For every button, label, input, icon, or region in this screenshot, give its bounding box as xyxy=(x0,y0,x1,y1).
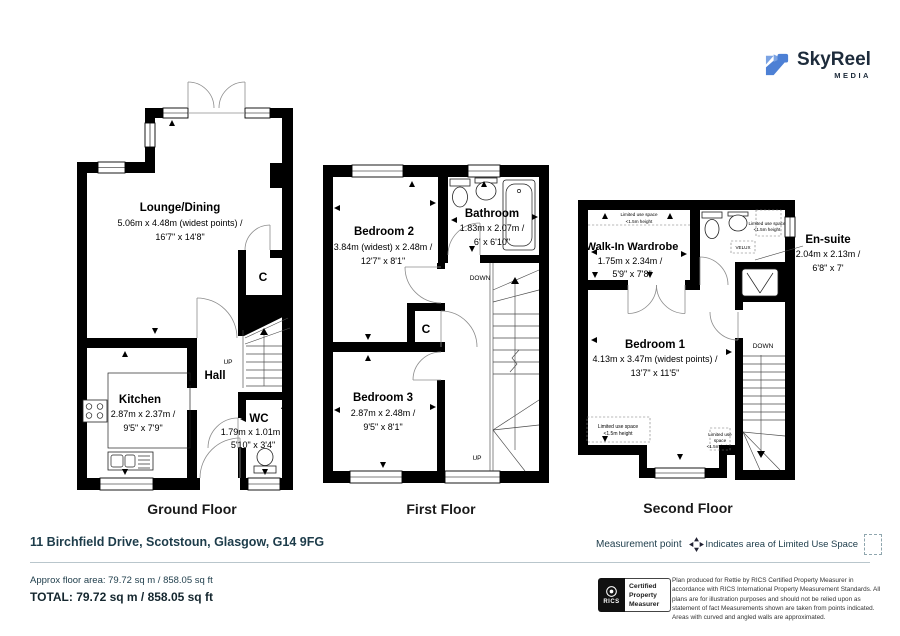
bedroom3-name: Bedroom 3 xyxy=(353,392,413,404)
kitchen-fixtures xyxy=(83,373,276,473)
bedroom1-dims-imperial: 13'7" x 11'5" xyxy=(631,368,680,378)
rics-emblem-icon xyxy=(605,585,618,598)
disclaimer-text: Plan produced for Rettie by RICS Certifi… xyxy=(672,576,886,622)
bathroom-name: Bathroom xyxy=(465,208,519,220)
rics-wordmark: RICS xyxy=(603,599,619,605)
legend-measurement-point: Measurement point xyxy=(596,539,682,550)
lounge-dims-imperial: 16'7" x 14'8" xyxy=(155,232,204,242)
second-floor-plan: Limited use space <1.5m height Walk-In W… xyxy=(575,190,875,490)
ensuite-dims-imperial: 6'8" x 7' xyxy=(812,263,843,273)
kitchen-dims-imperial: 9'5" x 7'9" xyxy=(123,423,162,433)
lounge-dims-metric: 5.06m x 4.48m (widest points) / xyxy=(117,218,243,228)
kitchen-sink-icon xyxy=(108,452,153,470)
property-address: 11 Birchfield Drive, Scotstoun, Glasgow,… xyxy=(30,535,324,549)
total-floor-area: TOTAL: 79.72 sq m / 858.05 sq ft xyxy=(30,590,213,604)
wardrobe-dims-imperial: 5'9" x 7'8" xyxy=(612,269,651,279)
toilet-icon xyxy=(702,212,722,239)
wc-name: WC xyxy=(249,413,268,425)
first-floor-plan: Bedroom 2 3.84m (widest) x 2.48m / 12'7"… xyxy=(320,160,552,485)
skyreel-logo-icon xyxy=(764,50,791,77)
legend-limited-use: Indicates area of Limited Use Space xyxy=(702,539,858,550)
second-floor-stairs xyxy=(743,355,785,470)
ensuite-dims-metric: 2.04m x 2.13m / xyxy=(796,249,861,259)
lounge-name: Lounge/Dining xyxy=(140,202,220,214)
ensuite-name: En-suite xyxy=(805,234,850,246)
bedroom3-dims-metric: 2.87m x 2.48m / xyxy=(351,408,416,418)
kitchen-dims-metric: 2.87m x 2.37m / xyxy=(111,409,176,419)
stairs-up-label: UP xyxy=(472,455,481,462)
stove-icon xyxy=(83,400,107,422)
skyreel-logo-text: SkyReel xyxy=(797,50,871,69)
rics-badge: RICS Certified Property Measurer xyxy=(598,578,671,612)
lus-bottomleft-line2: <1.5m height xyxy=(603,431,633,437)
lus-bottomright-line1: Limited use xyxy=(708,432,732,437)
hall-name: Hall xyxy=(204,370,225,382)
wc-dims-metric: 1.79m x 1.01m / xyxy=(221,427,286,437)
rics-logo: RICS xyxy=(598,578,625,612)
skyreel-logo-sub: MEDIA xyxy=(797,71,871,80)
kitchen-name: Kitchen xyxy=(119,394,161,406)
bedroom1-dims-metric: 4.13m x 3.47m (widest points) / xyxy=(592,354,718,364)
lus-bottomleft-line1: Limited use space xyxy=(598,424,639,430)
bedroom2-dims-metric: 3.84m (widest) x 2.48m / xyxy=(334,242,433,252)
lus-bottomright-line3: <1.5m height xyxy=(707,444,734,449)
approx-floor-area: Approx floor area: 79.72 sq m / 858.05 s… xyxy=(30,575,213,586)
limited-use-swatch-icon xyxy=(864,534,882,555)
second-floor-label: Second Floor xyxy=(608,500,768,516)
toilet-icon xyxy=(450,179,470,207)
lus-wardrobe-line1: Limited use space xyxy=(620,212,657,217)
closet-label: C xyxy=(259,270,268,284)
bedroom3-dims-imperial: 9'5" x 8'1" xyxy=(363,422,402,432)
skyreel-logo: SkyReel MEDIA xyxy=(764,50,871,80)
ground-floor-plan: Lounge/Dining 5.06m x 4.48m (widest poin… xyxy=(60,80,320,495)
shower-icon xyxy=(742,269,778,296)
wardrobe-dims-metric: 1.75m x 2.34m / xyxy=(598,256,663,266)
bedroom2-name: Bedroom 2 xyxy=(354,226,414,238)
lus-ensuite-line2: <1.5m height xyxy=(754,227,781,232)
ground-floor-label: Ground Floor xyxy=(112,501,272,517)
footer-divider xyxy=(30,562,870,563)
velux-label: VELUX xyxy=(735,245,750,250)
bathroom-dims-metric: 1.83m x 2.07m / xyxy=(460,223,525,233)
stairs-up-label: UP xyxy=(223,359,232,366)
bathroom-dims-imperial: 6' x 6'10" xyxy=(474,237,510,247)
bedroom2-dims-imperial: 12'7" x 8'1" xyxy=(361,256,405,266)
first-floor-stairs xyxy=(490,263,539,471)
closet-label: C xyxy=(422,322,431,336)
sink-icon xyxy=(728,212,748,231)
bedroom1-name: Bedroom 1 xyxy=(625,339,686,351)
lus-bottomright-line2: space xyxy=(714,438,727,443)
stairs-down-label: DOWN xyxy=(753,343,774,350)
stairs-down-label: DOWN xyxy=(470,275,491,282)
floorplan-page: SkyReel MEDIA xyxy=(0,0,900,636)
lus-wardrobe-line2: <1.5m height xyxy=(626,219,653,224)
first-floor-label: First Floor xyxy=(361,501,521,517)
sink-icon xyxy=(475,178,497,200)
skyreel-logo-textwrap: SkyReel MEDIA xyxy=(797,50,871,80)
wardrobe-name: Walk-In Wardrobe xyxy=(586,241,679,253)
lus-ensuite-line1: Limited use space xyxy=(748,221,785,226)
rics-certified-label: Certified Property Measurer xyxy=(625,578,671,612)
wc-dims-imperial: 5'10" x 3'4" xyxy=(231,440,275,450)
